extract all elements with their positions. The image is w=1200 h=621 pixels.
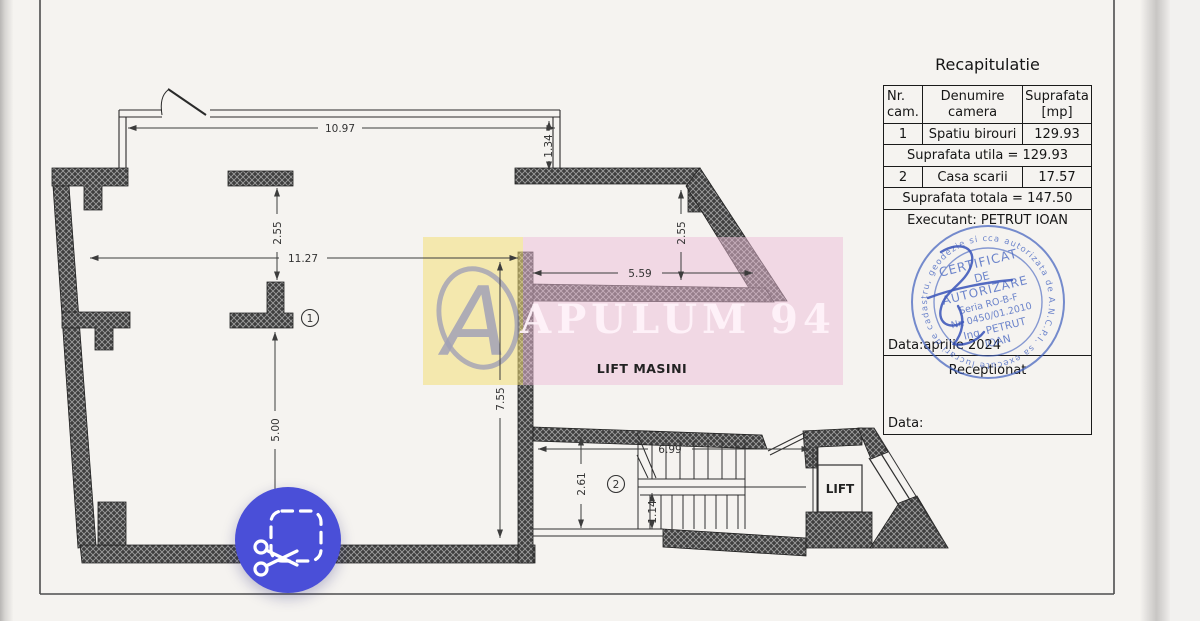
recap-total-row: Suprafata totala = 147.50 [884,187,1091,209]
dim-label-flight-width: 1.14 [647,500,659,524]
recap-subtotal-row: Suprafata utila = 129.93 [884,144,1091,166]
recap-title: Recapitulatie [883,55,1092,74]
entrance-door [161,89,206,115]
dim-label-lower-left-depth: 5.00 [270,418,282,441]
wall-left-slanted [53,186,96,548]
dim-label-upper-left-depth: 2.55 [272,221,284,244]
row1-nr: 1 [884,124,923,144]
svg-text:2: 2 [613,479,620,491]
snip-screenshot-button[interactable] [235,487,341,593]
door-swing-arc [161,90,168,115]
executant-box: Executant: PETRUT IOAN Data:aprilie 2024 [884,209,1091,355]
row1-area: 129.93 [1023,124,1091,144]
row2-area: 17.57 [1023,167,1091,187]
executant-date: Data:aprilie 2024 [888,338,1001,353]
wall-lift-top [803,428,862,468]
dim-label-right-depth: 7.55 [495,387,507,410]
lift-room [813,447,912,512]
dim-label-wing-depth: 2.55 [676,221,688,244]
wall-lift-bottom [806,512,872,548]
total-text: Suprafata totala = 147.50 [884,188,1091,209]
watermark-brand-text: APULUM 94 [519,296,836,343]
recap-row-1: 1 Spatiu birouri 129.93 [884,123,1091,144]
row2-nr: 2 [884,167,923,187]
executant-text: Executant: PETRUT IOAN [884,210,1091,228]
recap-header-suprafata: Suprafata [mp] [1023,86,1091,123]
dim-label-top-width: 10.97 [325,123,355,135]
dim-label-entry-depth: 1.34 [543,134,555,158]
recap-header-nr: Nr. cam. [884,86,923,123]
room-2-marker: 2 [608,476,625,493]
wall-stairs-bottom [663,529,806,556]
row2-name: Casa scarii [923,167,1023,187]
lower-flight-steps [650,495,738,529]
subtotal-text: Suprafata utila = 129.93 [884,145,1091,166]
row1-name: Spatiu birouri [923,124,1023,144]
dim-label-stairs-width: 6.99 [658,444,681,456]
dim-label-wing-width: 5.59 [628,268,651,280]
recap-header-row: Nr. cam. Denumire camera Suprafata [mp] [884,86,1091,123]
room-1-marker: 1 [302,310,319,327]
receptionat-text: Receptionat [884,356,1091,378]
dim-label-room-width: 11.27 [288,253,318,265]
floor-plan-document: A APULUM 94 [0,0,1200,621]
recap-table: Recapitulatie Nr. cam. Denumire camera S… [883,55,1092,435]
wall-diag-lower-seg [870,496,948,548]
lift-masini-label: LIFT MASINI [597,361,687,376]
wall-top-right-band [515,168,700,184]
wall-top-middle-block [228,171,293,186]
scissors-snip-icon [235,487,341,593]
svg-text:1: 1 [307,313,314,325]
receptionat-date: Data: [888,416,923,431]
receptionat-box: Receptionat Data: [884,355,1091,434]
wall-center-pilaster [230,282,293,328]
recap-header-denumire: Denumire camera [923,86,1023,123]
lift-label: LIFT [826,482,855,496]
recap-row-2: 2 Casa scarii 17.57 [884,166,1091,187]
dim-label-stairs-depth: 2.61 [576,472,588,495]
wall-corner-notch [98,502,126,545]
wall-stairs-top [533,427,767,449]
glass-facade [119,110,560,168]
stairs-entry-door [768,432,808,455]
